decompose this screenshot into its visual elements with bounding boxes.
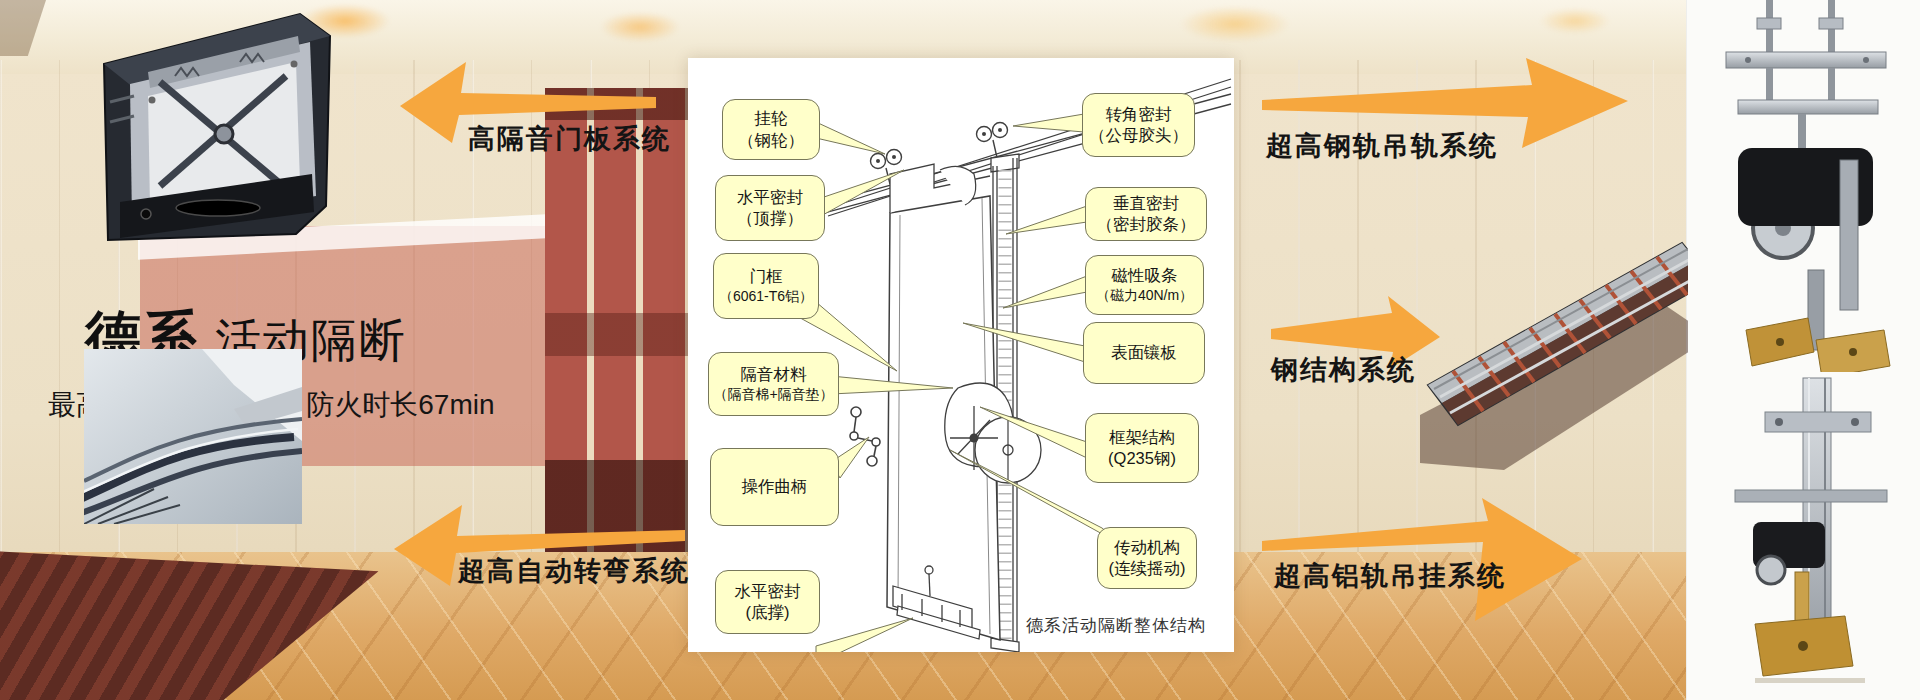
callout-text: (连续摇动) [1109,558,1186,579]
label-steel-rail-system: 超高钢轨吊轨系统 [1266,128,1498,164]
label-steel-structure-system: 钢结构系统 [1271,352,1416,388]
callout-magnetic-strip: 磁性吸条 （磁力40N/m） [1085,255,1204,315]
callout-operating-crank: 操作曲柄 [710,448,839,526]
callout-text: （公母胶头） [1089,125,1188,146]
callout-text: 水平密封 [737,187,803,208]
callout-text: 门框 [750,266,783,287]
callout-horizontal-seal-top: 水平密封 （顶撑） [715,175,825,241]
callout-text: （密封胶条） [1097,214,1196,235]
callout-text: (Q235钢) [1108,448,1176,469]
callout-text: 隔音材料 [741,364,807,385]
callout-text: 传动机构 [1114,537,1180,558]
photo-steel-trolley-system [1688,0,1920,405]
callout-text: 框架结构 [1109,427,1175,448]
callout-text: （隔音棉+隔音垫） [713,386,833,404]
callout-text: 转角密封 [1106,104,1172,125]
callout-corner-seal: 转角密封 （公母胶头） [1082,93,1195,157]
callout-text: 磁性吸条 [1112,265,1178,286]
callout-text: 表面镶板 [1111,342,1177,363]
label-alu-rail-system: 超高铝轨吊挂系统 [1274,558,1506,594]
callout-text: （顶撑） [737,208,803,229]
callout-horizontal-seal-bottom: 水平密封 (底撑) [715,570,820,634]
callout-surface-panel: 表面镶板 [1083,322,1205,384]
callout-text: 操作曲柄 [742,476,808,497]
callout-vertical-seal: 垂直密封 （密封胶条） [1085,187,1207,241]
poster: 高隔音门板系统 超高钢轨吊轨系统 钢结构系统 超高自动转弯系统 超高铝轨吊挂系统… [0,0,1920,700]
diagram-caption: 德系活动隔断整体结构 [1026,614,1231,637]
callout-text: (底撑) [746,602,790,623]
label-auto-turn-system: 超高自动转弯系统 [458,553,690,589]
photo-steel-truss [1420,225,1720,470]
callout-hanging-wheel: 挂轮 （钢轮） [722,99,820,160]
callout-text: （6061-T6铝） [719,288,813,306]
callout-transmission: 传动机构 (连续摇动) [1097,527,1197,589]
callout-text: 挂轮 [755,108,788,129]
photo-door-panel-mechanism [90,6,335,256]
callout-text: 水平密封 [735,581,801,602]
callout-sound-insulation: 隔音材料 （隔音棉+隔音垫） [708,352,839,416]
callout-text: （磁力40N/m） [1096,287,1193,305]
photo-aluminum-hanger-system [1695,372,1920,700]
callout-door-frame: 门框 （6061-T6铝） [713,253,819,319]
callout-text: 垂直密封 [1113,193,1179,214]
photo-curved-track [84,349,302,524]
callout-text: （钢轮） [738,130,804,151]
callout-frame-structure: 框架结构 (Q235钢) [1085,413,1199,483]
label-door-panel-system: 高隔音门板系统 [468,121,671,157]
